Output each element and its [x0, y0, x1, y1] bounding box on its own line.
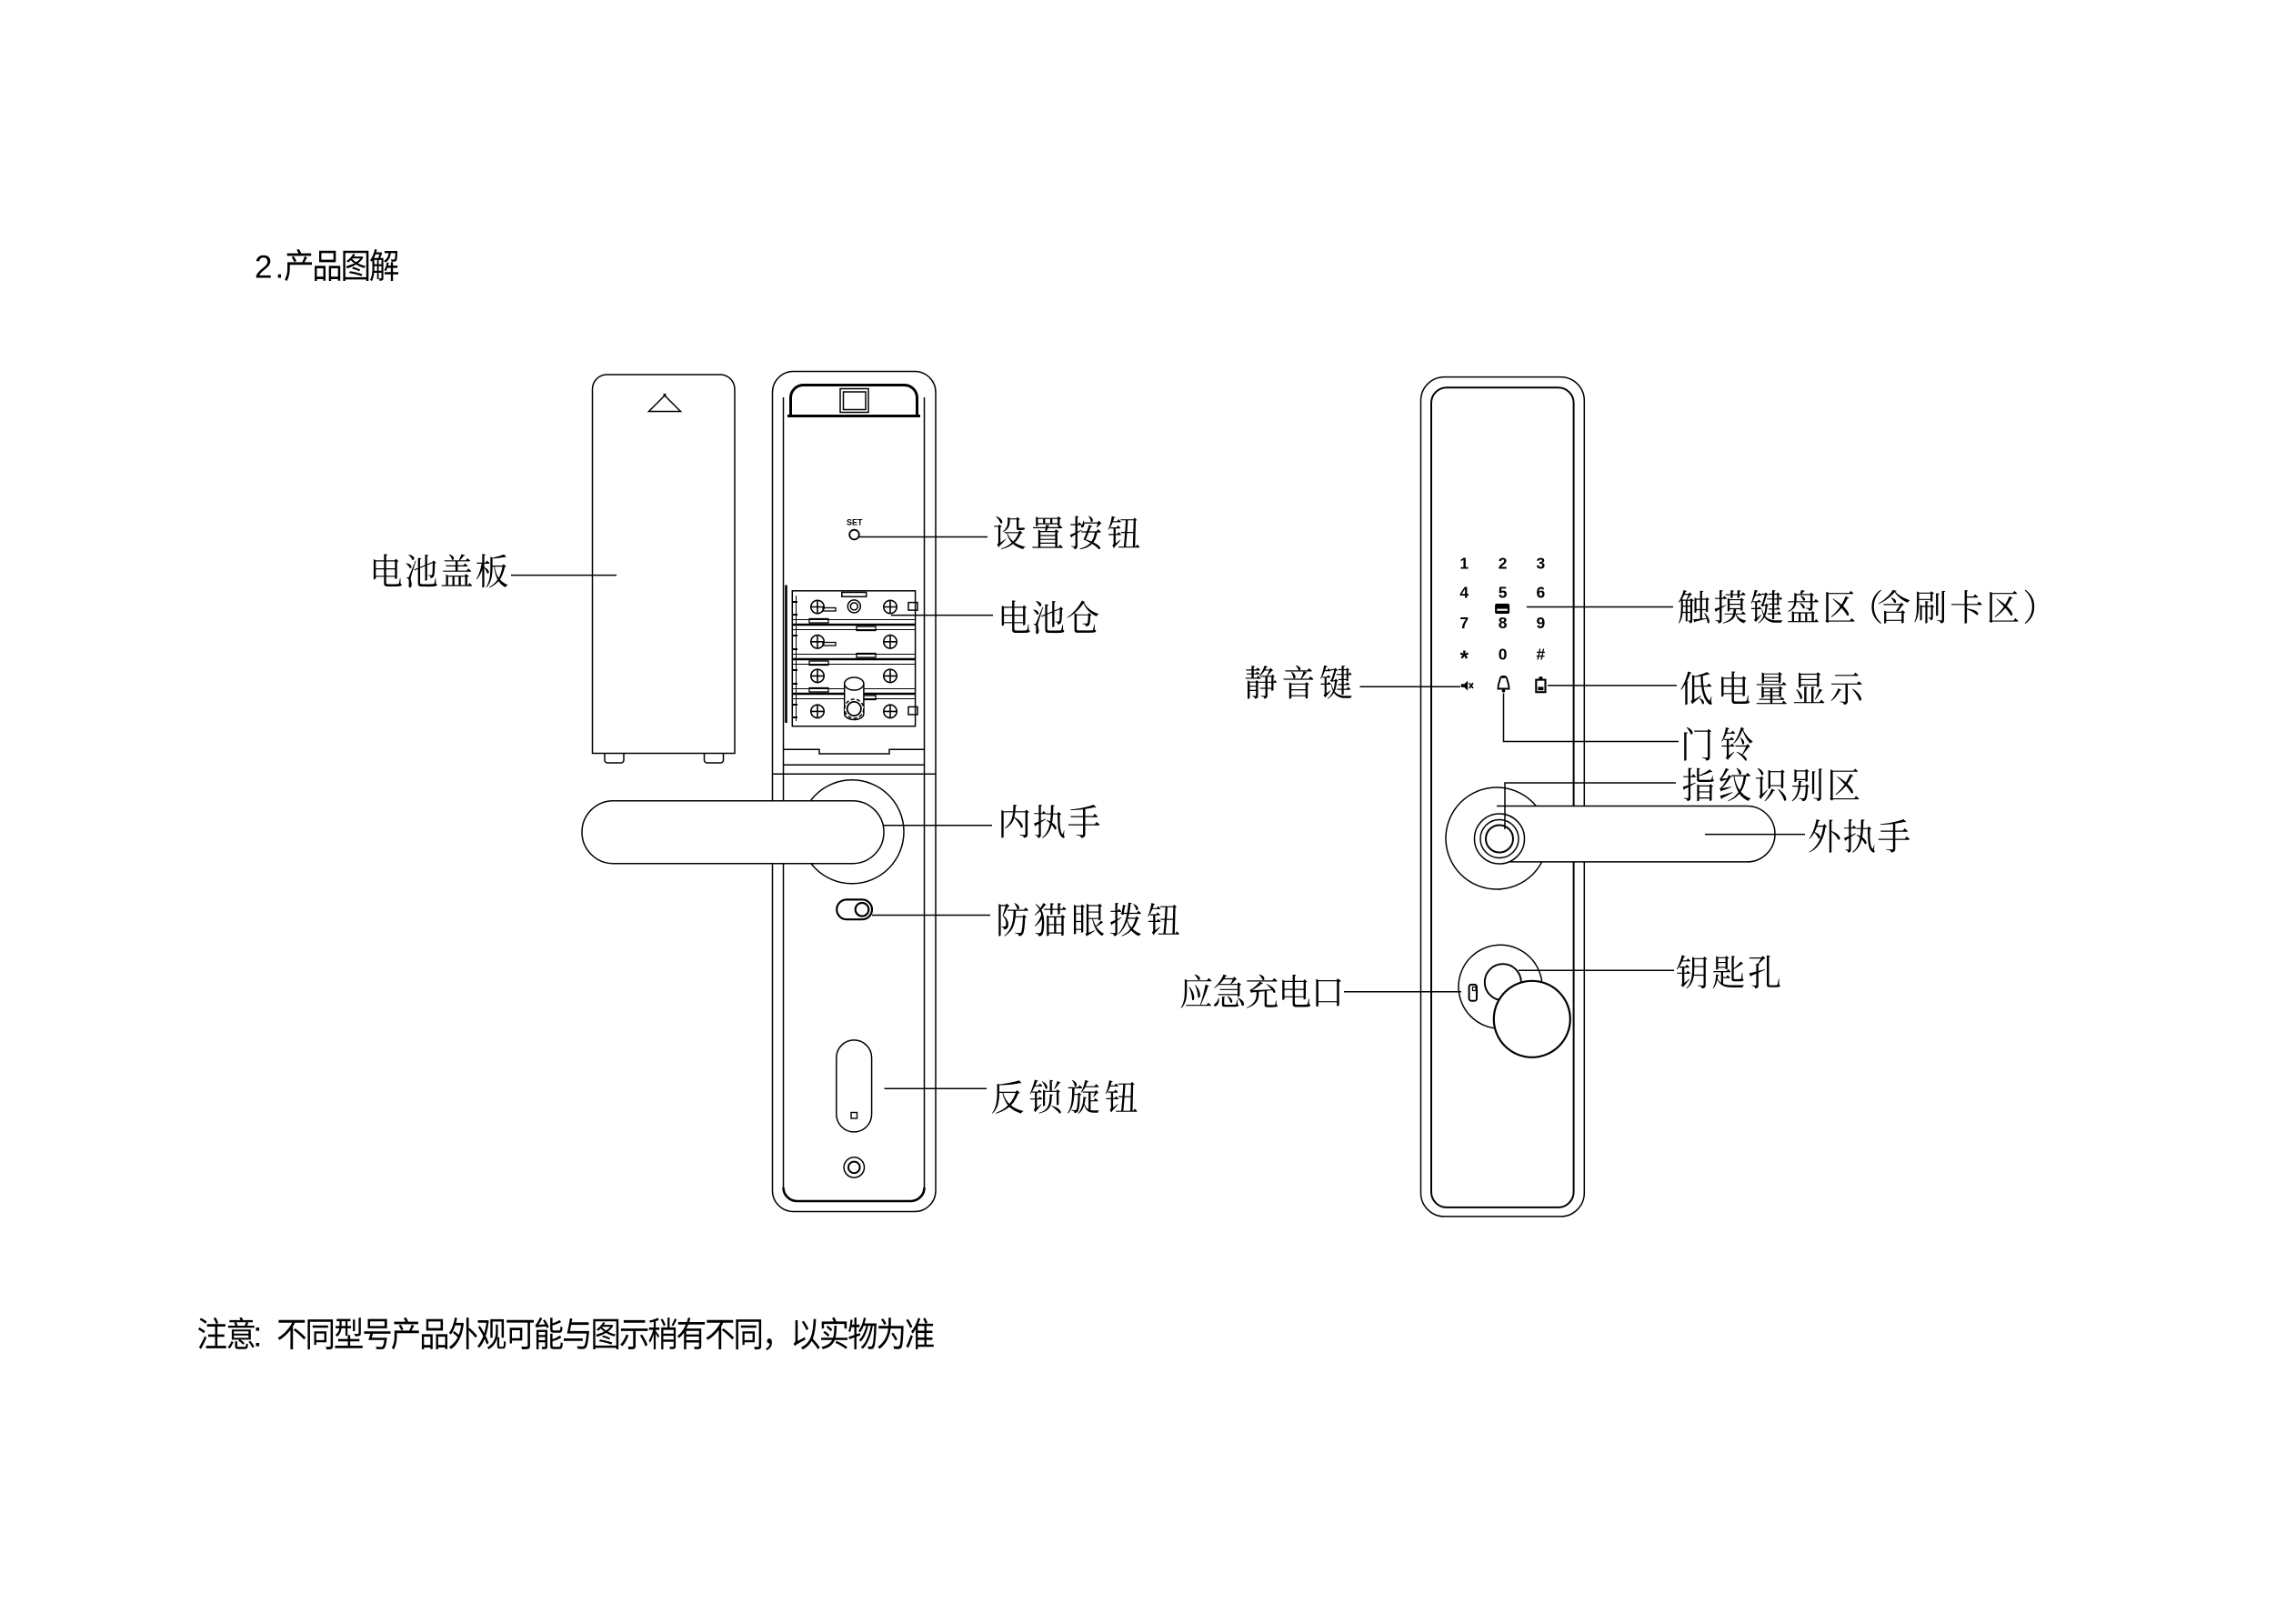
svg-text:*: *	[1460, 646, 1469, 671]
svg-text:3: 3	[1537, 555, 1546, 573]
svg-text:1: 1	[1459, 555, 1469, 573]
svg-text:SET: SET	[847, 518, 863, 527]
svg-text:6: 6	[1537, 584, 1546, 602]
svg-text:9: 9	[1537, 614, 1546, 632]
svg-text:5: 5	[1499, 584, 1508, 602]
svg-text:4: 4	[1459, 584, 1469, 602]
svg-text:7: 7	[1459, 614, 1469, 632]
svg-text:0: 0	[1499, 646, 1508, 664]
svg-text:#: #	[1537, 646, 1546, 664]
svg-text:8: 8	[1499, 614, 1508, 632]
svg-text:2: 2	[255, 250, 272, 286]
svg-text:2: 2	[1499, 555, 1508, 573]
svg-text:.: .	[276, 250, 285, 286]
